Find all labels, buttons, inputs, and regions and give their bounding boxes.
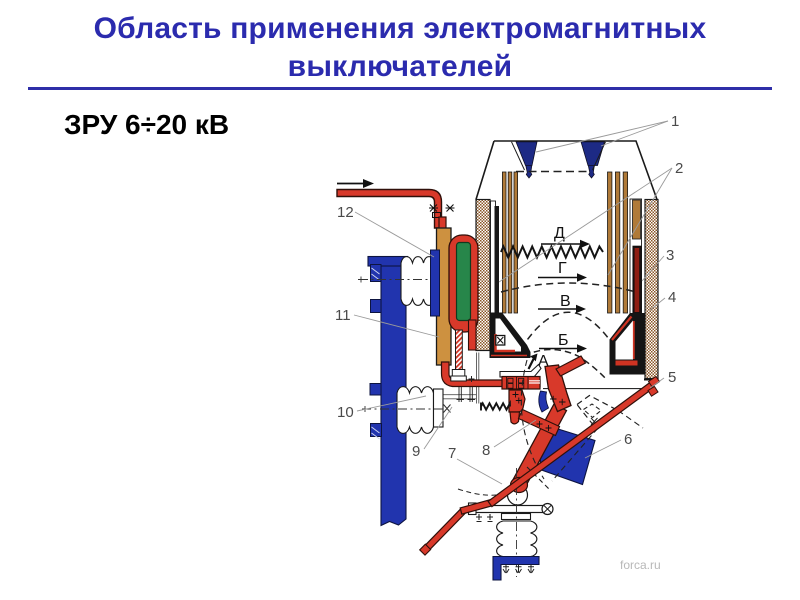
svg-text:11: 11 — [335, 307, 351, 324]
svg-text:4: 4 — [668, 289, 676, 306]
svg-text:10: 10 — [337, 404, 354, 421]
svg-text:8: 8 — [482, 442, 490, 459]
svg-text:5: 5 — [668, 369, 676, 386]
svg-text:3: 3 — [666, 247, 674, 264]
svg-text:1: 1 — [671, 113, 679, 130]
svg-text:2: 2 — [675, 160, 683, 177]
svg-text:В: В — [560, 293, 571, 310]
svg-text:Г: Г — [558, 260, 567, 277]
svg-text:7: 7 — [448, 445, 456, 462]
svg-text:9: 9 — [412, 443, 420, 460]
svg-text:6: 6 — [624, 431, 632, 448]
svg-text:Б: Б — [558, 332, 569, 349]
svg-text:12: 12 — [337, 204, 354, 221]
